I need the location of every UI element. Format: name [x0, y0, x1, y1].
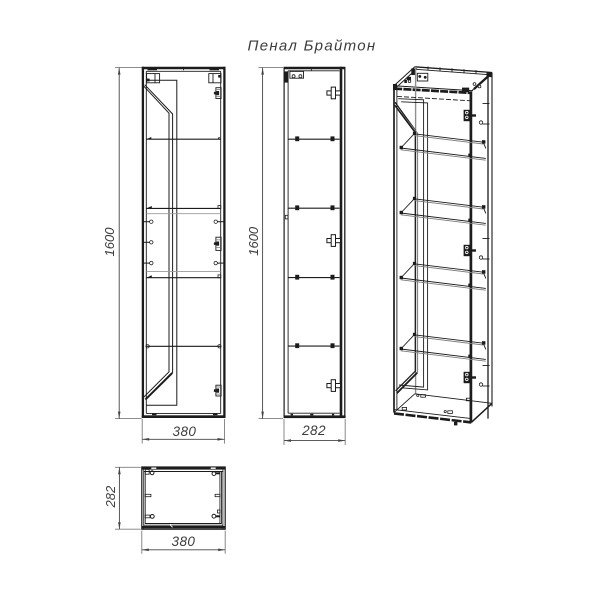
- svg-text:1600: 1600: [246, 226, 261, 256]
- svg-text:282: 282: [103, 485, 118, 508]
- svg-text:1600: 1600: [102, 227, 117, 257]
- svg-text:282: 282: [301, 423, 326, 438]
- svg-text:380: 380: [173, 424, 197, 439]
- svg-text:Пенал Брайтон: Пенал Брайтон: [248, 38, 377, 55]
- svg-text:380: 380: [172, 534, 196, 549]
